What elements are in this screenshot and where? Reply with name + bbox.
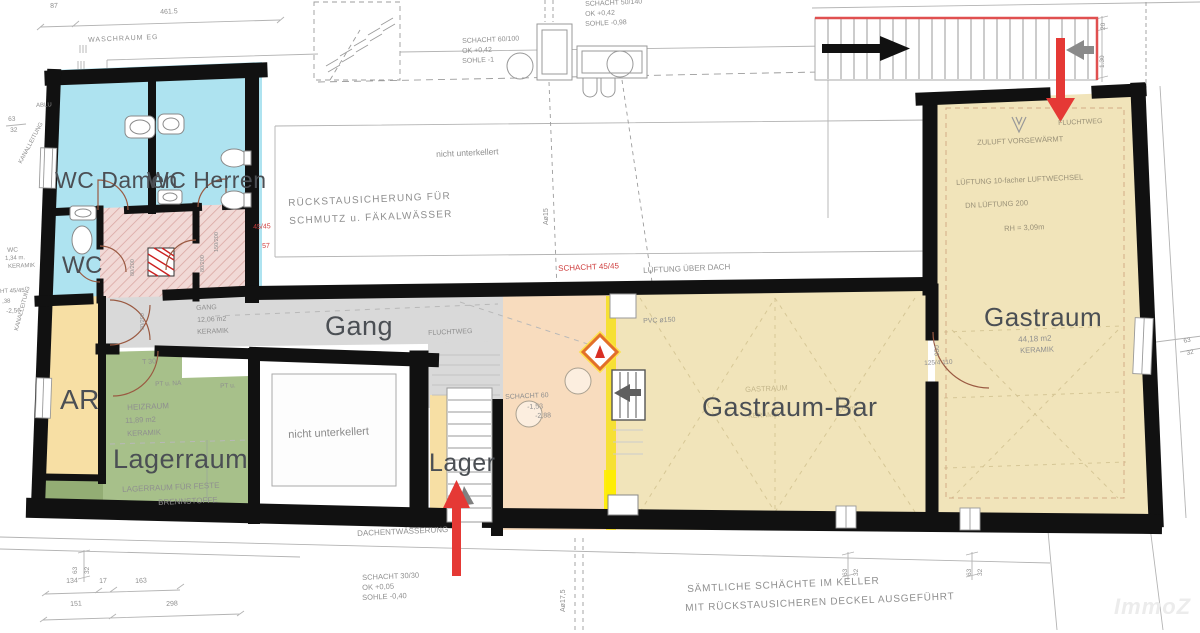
a-17-5-label: Aø17,5 xyxy=(560,589,568,612)
dim-151: 151 xyxy=(70,600,82,609)
room-label-gastraum: Gastraum xyxy=(984,302,1102,333)
room-label-lagerraum: Lagerraum xyxy=(113,444,248,475)
pt-u-label: PT u. xyxy=(220,382,236,390)
gastraum-area: 44,18 m2 xyxy=(1018,334,1052,345)
room-label-ar: AR xyxy=(60,384,100,416)
room-label-gastraum-bar: Gastraum-Bar xyxy=(702,392,878,423)
dim-461: 461.5 xyxy=(160,8,178,17)
toilet-icon xyxy=(221,149,247,167)
dim-63-bl: 63 xyxy=(72,567,79,574)
rh-309-label: RH = 3,09m xyxy=(1004,223,1045,233)
pvc-label: PVC ø150 xyxy=(643,317,676,326)
dim-32-bl: 32 xyxy=(84,567,91,574)
door-t30: T 30 xyxy=(142,358,156,367)
door-size-80-3: 80/200 xyxy=(140,313,146,330)
basement-floor-plan: WC Damen WC Herren WC AR Lagerraum Gang … xyxy=(0,0,1200,633)
dim-125-4-110: 125/4 110 xyxy=(924,359,953,368)
dim-298: 298 xyxy=(166,600,178,609)
level-153: -1,53 xyxy=(527,403,543,412)
wc-area-label: 1,34 m. xyxy=(5,255,25,263)
room-label-wc-herren: WC Herren xyxy=(147,167,267,194)
door-size-80-1: 80/200 xyxy=(130,259,136,276)
schacht-50-ok: OK +0,42 xyxy=(585,10,615,19)
heizraum-area: 11,89 m2 xyxy=(125,416,156,426)
dim-87: 87 xyxy=(50,3,58,11)
level-138: ,38 xyxy=(2,299,11,306)
heizraum-keramik: KERAMIK xyxy=(127,429,161,439)
red-45-45-fragment: 45/45 xyxy=(253,223,271,232)
gang-small-label: GANG xyxy=(196,304,217,313)
pvc-shaft-box xyxy=(610,294,636,318)
dim-63-s1: 63 xyxy=(842,569,849,576)
ht-45-45-label: HT 45/45 xyxy=(0,288,25,296)
dim-32-s1: 32 xyxy=(853,569,860,576)
dim-32-east: 32 xyxy=(1186,349,1194,358)
sink-icon xyxy=(158,114,184,134)
wc-small-label: WC xyxy=(7,247,18,255)
sink-icon xyxy=(70,206,96,220)
shaft-circle xyxy=(565,368,591,394)
dim-17: 17 xyxy=(99,578,107,586)
schacht-60-sohle: SOHLE -1 xyxy=(462,57,494,66)
dim-134: 134 xyxy=(66,577,78,586)
toilet-icon xyxy=(72,226,92,254)
abluft-label: ABLU xyxy=(36,102,52,110)
heizraum-label: HEIZRAUM xyxy=(127,401,169,412)
room-label-gang: Gang xyxy=(325,311,393,342)
dim-32-topleft: 32 xyxy=(10,127,18,135)
level-288: -2,88 xyxy=(535,412,551,421)
gang-area: 12,06 m2 xyxy=(197,316,227,325)
stairs-dim-20: 20 xyxy=(1100,23,1107,30)
gastraum-keramik: KERAMIK xyxy=(1020,346,1054,356)
room-label-lager: Lager xyxy=(429,449,495,478)
shaft-symbols xyxy=(507,24,647,97)
red-57-fragment: 57 xyxy=(262,243,270,251)
wc-keramik-label: KERAMIK xyxy=(8,263,35,271)
door-size-150: 150/200 xyxy=(214,232,220,252)
gang-keramik: KERAMIK xyxy=(197,328,229,337)
dim-63-topleft: 63 xyxy=(8,116,16,124)
dim-163: 163 xyxy=(135,577,147,586)
chimney-symbol xyxy=(148,248,174,276)
dim-63-east: 63 xyxy=(1183,337,1191,346)
door-size-80-2: 80/200 xyxy=(200,255,206,272)
floor-hatch-box xyxy=(608,495,638,515)
room-label-wc: WC xyxy=(62,252,103,280)
stairs-dim-130: 1.30 xyxy=(1099,55,1106,68)
schacht-60-ok: OK +0,42 xyxy=(462,47,492,56)
dim-63-s2: 63 xyxy=(966,569,973,576)
dim-950: 950 xyxy=(934,345,941,356)
pt-na-label: PT u. NA xyxy=(155,380,182,389)
immoz-watermark: ImmoZ xyxy=(1114,594,1191,620)
dim-32-s2: 32 xyxy=(977,569,984,576)
room-vestibule-fill xyxy=(100,204,250,300)
a-15-label: Aø15 xyxy=(543,208,551,225)
